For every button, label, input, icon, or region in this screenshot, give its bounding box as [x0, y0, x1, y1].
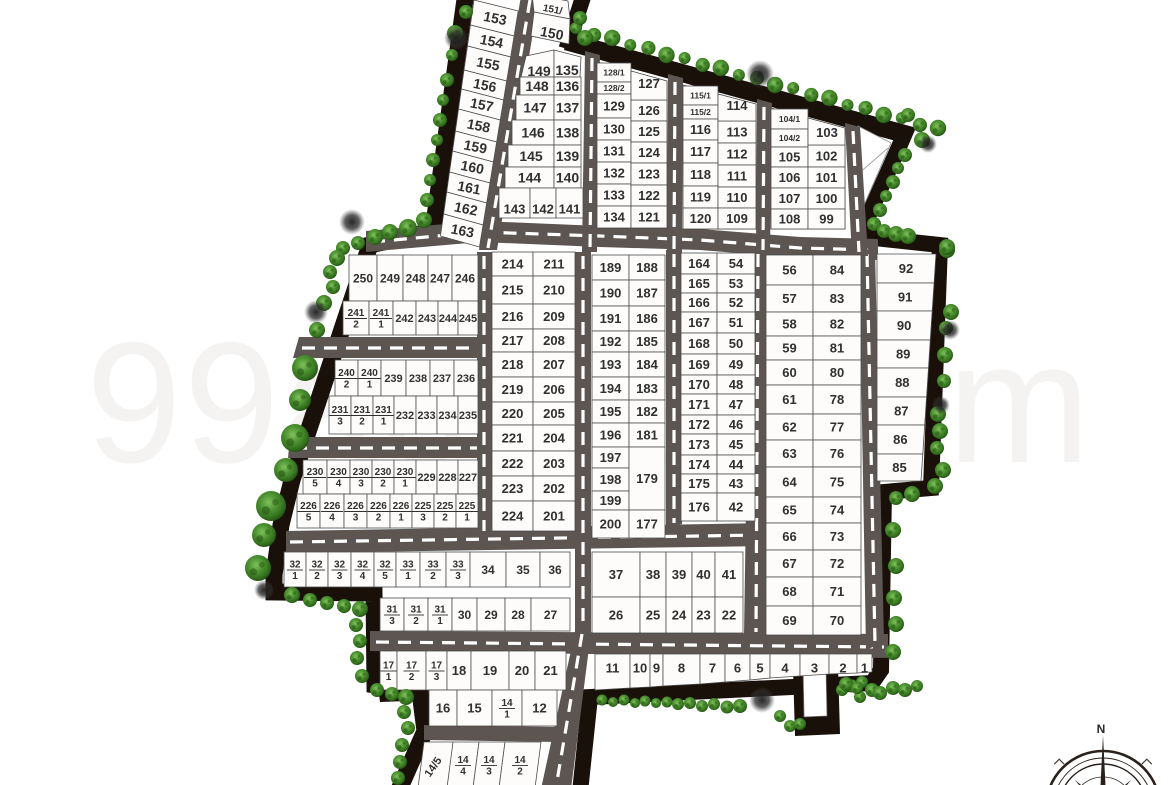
- svg-text:104/2: 104/2: [779, 133, 801, 143]
- svg-text:246: 246: [455, 271, 475, 285]
- svg-text:236: 236: [457, 373, 475, 385]
- svg-text:198: 198: [600, 472, 622, 487]
- svg-text:2: 2: [442, 513, 448, 524]
- svg-text:147: 147: [523, 100, 547, 116]
- svg-text:87: 87: [894, 404, 908, 419]
- svg-text:183: 183: [636, 381, 658, 396]
- svg-text:14: 14: [483, 755, 495, 766]
- svg-text:89: 89: [896, 347, 910, 362]
- svg-text:228: 228: [438, 472, 456, 484]
- svg-text:3: 3: [811, 661, 818, 676]
- svg-text:109: 109: [726, 211, 748, 226]
- svg-text:140: 140: [556, 170, 580, 186]
- svg-text:241: 241: [373, 308, 390, 319]
- svg-text:14: 14: [457, 755, 469, 766]
- svg-text:145: 145: [519, 148, 543, 164]
- svg-text:2: 2: [353, 320, 359, 331]
- svg-text:7: 7: [709, 661, 716, 676]
- svg-text:117: 117: [690, 144, 711, 159]
- svg-text:85: 85: [892, 460, 906, 475]
- svg-text:175: 175: [688, 476, 710, 491]
- svg-text:211: 211: [544, 257, 565, 272]
- svg-text:33: 33: [402, 560, 414, 571]
- svg-text:19: 19: [483, 663, 497, 678]
- svg-text:141: 141: [559, 202, 581, 217]
- svg-text:247: 247: [430, 271, 450, 285]
- svg-text:21: 21: [543, 663, 557, 678]
- svg-text:202: 202: [543, 481, 565, 496]
- svg-text:217: 217: [502, 333, 524, 348]
- svg-text:129: 129: [603, 99, 625, 114]
- svg-text:226: 226: [370, 501, 387, 512]
- svg-text:194: 194: [600, 381, 622, 396]
- svg-text:73: 73: [830, 529, 844, 544]
- svg-text:222: 222: [502, 456, 524, 471]
- svg-text:64: 64: [782, 475, 797, 490]
- svg-text:235: 235: [459, 410, 477, 422]
- svg-text:32: 32: [357, 560, 369, 571]
- svg-text:66: 66: [782, 529, 796, 544]
- svg-text:115/1: 115/1: [690, 91, 711, 101]
- svg-text:249: 249: [380, 271, 400, 285]
- svg-text:226: 226: [347, 501, 364, 512]
- svg-text:108: 108: [779, 212, 801, 227]
- svg-text:48: 48: [729, 377, 743, 392]
- svg-text:82: 82: [830, 317, 844, 332]
- svg-text:28: 28: [511, 608, 525, 622]
- svg-text:106: 106: [779, 170, 801, 185]
- svg-text:17: 17: [383, 661, 395, 672]
- svg-text:8: 8: [678, 661, 685, 676]
- svg-text:3: 3: [353, 513, 359, 524]
- svg-text:49: 49: [729, 357, 743, 372]
- svg-text:190: 190: [600, 286, 622, 301]
- svg-text:46: 46: [729, 417, 743, 432]
- svg-text:70: 70: [830, 613, 844, 628]
- svg-text:119: 119: [690, 190, 711, 205]
- svg-text:37: 37: [609, 567, 623, 582]
- svg-text:2: 2: [376, 513, 382, 524]
- svg-text:225: 225: [437, 501, 454, 512]
- svg-text:61: 61: [782, 392, 796, 407]
- svg-text:239: 239: [384, 373, 402, 385]
- svg-text:31: 31: [386, 605, 398, 616]
- svg-text:229: 229: [417, 472, 435, 484]
- svg-text:103: 103: [816, 125, 838, 140]
- svg-text:169: 169: [688, 357, 710, 372]
- svg-text:15: 15: [467, 701, 481, 716]
- svg-text:2: 2: [409, 672, 415, 683]
- svg-text:219: 219: [502, 382, 524, 397]
- svg-text:184: 184: [636, 357, 658, 372]
- svg-text:227: 227: [459, 472, 477, 484]
- svg-text:17: 17: [431, 661, 443, 672]
- svg-text:218: 218: [502, 357, 524, 372]
- svg-text:209: 209: [543, 309, 565, 324]
- svg-text:237: 237: [433, 373, 451, 385]
- svg-text:177: 177: [636, 517, 658, 532]
- svg-text:243: 243: [418, 313, 436, 325]
- svg-text:47: 47: [729, 397, 743, 412]
- svg-text:91: 91: [898, 290, 912, 305]
- svg-text:44: 44: [729, 457, 744, 472]
- svg-text:224: 224: [502, 509, 524, 524]
- svg-text:74: 74: [830, 503, 845, 518]
- svg-text:231: 231: [354, 405, 371, 416]
- svg-text:6: 6: [734, 661, 741, 676]
- svg-text:5: 5: [756, 661, 763, 676]
- svg-text:128/2: 128/2: [603, 83, 625, 93]
- svg-text:149: 149: [527, 63, 551, 79]
- svg-text:14: 14: [501, 698, 513, 709]
- svg-text:216: 216: [502, 309, 524, 324]
- svg-text:164: 164: [688, 256, 710, 271]
- svg-text:136: 136: [556, 78, 580, 94]
- svg-text:132: 132: [603, 166, 625, 181]
- svg-text:35: 35: [516, 563, 530, 577]
- svg-text:230: 230: [307, 467, 324, 478]
- svg-text:172: 172: [688, 417, 710, 432]
- svg-text:24: 24: [672, 608, 687, 623]
- svg-text:2: 2: [344, 380, 350, 391]
- svg-text:2: 2: [380, 479, 386, 490]
- svg-text:248: 248: [405, 271, 425, 285]
- svg-text:2: 2: [517, 767, 523, 778]
- svg-text:86: 86: [893, 432, 907, 447]
- svg-text:189: 189: [600, 260, 622, 275]
- svg-text:N: N: [1097, 722, 1106, 736]
- svg-text:23: 23: [696, 608, 710, 623]
- svg-text:165: 165: [688, 276, 710, 291]
- svg-text:4: 4: [781, 661, 789, 676]
- svg-text:121: 121: [638, 210, 660, 225]
- svg-text:118: 118: [690, 167, 711, 182]
- svg-text:3: 3: [420, 513, 426, 524]
- svg-text:40: 40: [696, 567, 710, 582]
- svg-text:168: 168: [688, 336, 710, 351]
- svg-text:195: 195: [600, 404, 622, 419]
- svg-text:200: 200: [600, 517, 622, 532]
- svg-text:104/1: 104/1: [779, 114, 801, 124]
- svg-text:32: 32: [289, 560, 301, 571]
- svg-text:57: 57: [782, 291, 796, 306]
- svg-text:105: 105: [779, 150, 801, 165]
- svg-text:99: 99: [819, 212, 833, 227]
- svg-text:77: 77: [830, 420, 844, 435]
- svg-text:1: 1: [861, 661, 868, 676]
- svg-text:221: 221: [502, 431, 524, 446]
- svg-text:230: 230: [353, 467, 370, 478]
- svg-text:126: 126: [638, 103, 660, 118]
- svg-text:122: 122: [638, 188, 660, 203]
- svg-text:11: 11: [606, 661, 620, 676]
- svg-text:167: 167: [688, 315, 710, 330]
- svg-text:84: 84: [830, 263, 845, 278]
- svg-text:214: 214: [502, 257, 524, 272]
- svg-text:1: 1: [405, 571, 411, 582]
- svg-text:186: 186: [636, 311, 658, 326]
- svg-text:128/1: 128/1: [603, 68, 625, 78]
- svg-text:68: 68: [782, 584, 796, 599]
- svg-text:238: 238: [409, 373, 427, 385]
- svg-text:1: 1: [398, 513, 404, 524]
- svg-text:100: 100: [816, 191, 838, 206]
- svg-text:125: 125: [638, 124, 660, 139]
- svg-text:210: 210: [543, 283, 565, 298]
- svg-text:18: 18: [452, 663, 466, 678]
- svg-text:204: 204: [543, 431, 565, 446]
- svg-text:83: 83: [830, 291, 844, 306]
- svg-text:116: 116: [690, 122, 711, 137]
- svg-text:3: 3: [455, 571, 461, 582]
- svg-text:127: 127: [638, 76, 660, 91]
- svg-text:25: 25: [646, 608, 660, 623]
- svg-text:2: 2: [413, 616, 419, 627]
- svg-text:2: 2: [430, 571, 436, 582]
- svg-text:81: 81: [830, 341, 844, 356]
- svg-text:176: 176: [688, 500, 710, 515]
- svg-text:101: 101: [816, 170, 838, 185]
- svg-text:38: 38: [646, 567, 660, 582]
- svg-text:3: 3: [358, 479, 364, 490]
- svg-text:53: 53: [729, 276, 743, 291]
- svg-text:185: 185: [636, 334, 658, 349]
- svg-text:208: 208: [543, 333, 565, 348]
- svg-text:12: 12: [532, 701, 546, 716]
- svg-text:226: 226: [300, 501, 317, 512]
- svg-text:76: 76: [830, 446, 844, 461]
- svg-text:1: 1: [402, 479, 408, 490]
- svg-text:139: 139: [556, 148, 580, 164]
- svg-text:36: 36: [548, 563, 562, 577]
- svg-text:3: 3: [486, 767, 492, 778]
- svg-text:1: 1: [386, 672, 392, 683]
- svg-text:226: 226: [393, 501, 410, 512]
- svg-text:60: 60: [782, 365, 796, 380]
- svg-text:231: 231: [332, 405, 349, 416]
- svg-text:199: 199: [600, 493, 622, 508]
- svg-text:65: 65: [782, 503, 796, 518]
- svg-text:62: 62: [782, 420, 796, 435]
- svg-text:42: 42: [729, 500, 743, 515]
- svg-text:230: 230: [375, 467, 392, 478]
- svg-text:207: 207: [543, 357, 565, 372]
- svg-text:193: 193: [600, 357, 622, 372]
- svg-text:17: 17: [406, 661, 418, 672]
- svg-text:130: 130: [603, 122, 625, 137]
- svg-text:201: 201: [543, 509, 565, 524]
- svg-text:3: 3: [337, 571, 343, 582]
- svg-text:233: 233: [417, 410, 435, 422]
- svg-text:3: 3: [389, 616, 395, 627]
- svg-text:5: 5: [382, 571, 388, 582]
- svg-text:32: 32: [311, 560, 323, 571]
- svg-text:107: 107: [779, 191, 801, 206]
- svg-text:225: 225: [459, 501, 476, 512]
- svg-text:113: 113: [727, 125, 748, 140]
- svg-text:1: 1: [378, 320, 384, 331]
- svg-text:187: 187: [636, 286, 658, 301]
- svg-text:80: 80: [830, 365, 844, 380]
- svg-text:215: 215: [502, 283, 524, 298]
- svg-text:1: 1: [292, 571, 298, 582]
- svg-text:1: 1: [504, 710, 510, 721]
- svg-text:72: 72: [830, 556, 844, 571]
- svg-text:54: 54: [729, 256, 744, 271]
- svg-text:88: 88: [895, 375, 909, 390]
- svg-text:242: 242: [395, 313, 413, 325]
- svg-text:9: 9: [653, 661, 660, 676]
- svg-text:69: 69: [782, 613, 796, 628]
- svg-text:144: 144: [518, 170, 542, 186]
- svg-text:56: 56: [782, 263, 796, 278]
- svg-text:1: 1: [464, 513, 470, 524]
- svg-text:240: 240: [361, 368, 378, 379]
- svg-text:31: 31: [434, 605, 446, 616]
- svg-text:20: 20: [515, 663, 529, 678]
- svg-text:225: 225: [415, 501, 432, 512]
- svg-text:131: 131: [603, 144, 625, 159]
- svg-text:5: 5: [306, 513, 312, 524]
- svg-text:31: 31: [410, 605, 422, 616]
- svg-text:110: 110: [727, 190, 748, 205]
- svg-text:78: 78: [830, 392, 844, 407]
- svg-text:203: 203: [543, 456, 565, 471]
- svg-text:230: 230: [397, 467, 414, 478]
- svg-text:148: 148: [525, 78, 549, 94]
- svg-text:5: 5: [312, 479, 318, 490]
- svg-text:112: 112: [727, 147, 748, 162]
- svg-text:4: 4: [329, 513, 335, 524]
- svg-text:43: 43: [729, 476, 743, 491]
- svg-text:192: 192: [600, 334, 622, 349]
- svg-text:33: 33: [452, 560, 464, 571]
- svg-text:171: 171: [688, 397, 710, 412]
- svg-text:4: 4: [460, 767, 466, 778]
- svg-text:39: 39: [672, 567, 686, 582]
- svg-text:29: 29: [484, 608, 498, 622]
- svg-text:226: 226: [324, 501, 341, 512]
- svg-text:232: 232: [396, 410, 414, 422]
- svg-text:16: 16: [436, 701, 450, 716]
- svg-text:135: 135: [555, 62, 579, 78]
- svg-text:205: 205: [543, 406, 565, 421]
- svg-text:52: 52: [729, 295, 743, 310]
- svg-text:92: 92: [899, 261, 913, 276]
- svg-text:240: 240: [338, 368, 355, 379]
- svg-text:32: 32: [334, 560, 346, 571]
- svg-text:1: 1: [437, 616, 443, 627]
- svg-text:146: 146: [521, 125, 545, 141]
- svg-text:3: 3: [434, 672, 440, 683]
- svg-text:191: 191: [600, 311, 622, 326]
- svg-text:26: 26: [609, 608, 623, 623]
- svg-text:22: 22: [722, 608, 736, 623]
- svg-text:30: 30: [458, 608, 472, 622]
- svg-text:2: 2: [314, 571, 320, 582]
- svg-text:2: 2: [839, 661, 846, 676]
- svg-text:4: 4: [360, 571, 366, 582]
- svg-text:170: 170: [688, 377, 710, 392]
- svg-text:142: 142: [532, 202, 554, 217]
- svg-text:230: 230: [330, 467, 347, 478]
- svg-text:124: 124: [638, 145, 660, 160]
- svg-text:1: 1: [381, 417, 387, 428]
- svg-text:59: 59: [782, 341, 796, 356]
- svg-text:90: 90: [897, 318, 911, 333]
- svg-text:14: 14: [514, 755, 526, 766]
- svg-text:197: 197: [600, 450, 622, 465]
- svg-text:223: 223: [502, 481, 524, 496]
- svg-text:241: 241: [348, 308, 365, 319]
- svg-text:143: 143: [504, 202, 526, 217]
- svg-text:133: 133: [603, 188, 625, 203]
- svg-text:220: 220: [502, 406, 524, 421]
- svg-text:27: 27: [544, 608, 558, 622]
- svg-text:166: 166: [688, 295, 710, 310]
- svg-text:58: 58: [782, 317, 796, 332]
- svg-text:181: 181: [636, 428, 658, 443]
- svg-text:173: 173: [688, 437, 710, 452]
- svg-text:111: 111: [727, 169, 747, 184]
- svg-text:63: 63: [782, 446, 796, 461]
- svg-text:188: 188: [636, 260, 658, 275]
- svg-text:102: 102: [816, 149, 838, 164]
- svg-text:137: 137: [556, 100, 580, 116]
- svg-text:231: 231: [375, 405, 392, 416]
- svg-text:4: 4: [336, 479, 342, 490]
- svg-text:45: 45: [729, 437, 743, 452]
- svg-text:179: 179: [636, 471, 658, 486]
- svg-text:32: 32: [379, 560, 391, 571]
- svg-text:250: 250: [353, 271, 373, 285]
- svg-text:120: 120: [690, 211, 712, 226]
- svg-text:182: 182: [636, 404, 658, 419]
- svg-text:71: 71: [830, 584, 844, 599]
- svg-text:3: 3: [337, 417, 343, 428]
- svg-text:114: 114: [727, 98, 749, 113]
- svg-text:41: 41: [722, 567, 736, 582]
- svg-text:138: 138: [556, 125, 580, 141]
- svg-text:51: 51: [729, 315, 743, 330]
- svg-text:196: 196: [600, 428, 622, 443]
- svg-text:50: 50: [729, 336, 743, 351]
- svg-text:245: 245: [459, 313, 477, 325]
- svg-text:206: 206: [543, 382, 565, 397]
- svg-text:244: 244: [439, 313, 458, 325]
- svg-text:115/2: 115/2: [690, 107, 711, 117]
- svg-text:123: 123: [638, 167, 660, 182]
- svg-text:174: 174: [688, 457, 710, 472]
- svg-text:10: 10: [633, 661, 647, 676]
- svg-text:234: 234: [438, 410, 457, 422]
- svg-text:67: 67: [782, 556, 796, 571]
- svg-text:33: 33: [427, 560, 439, 571]
- svg-text:134: 134: [603, 210, 625, 225]
- svg-text:75: 75: [830, 475, 844, 490]
- svg-text:2: 2: [359, 417, 365, 428]
- svg-text:34: 34: [481, 563, 495, 577]
- svg-text:1: 1: [367, 380, 373, 391]
